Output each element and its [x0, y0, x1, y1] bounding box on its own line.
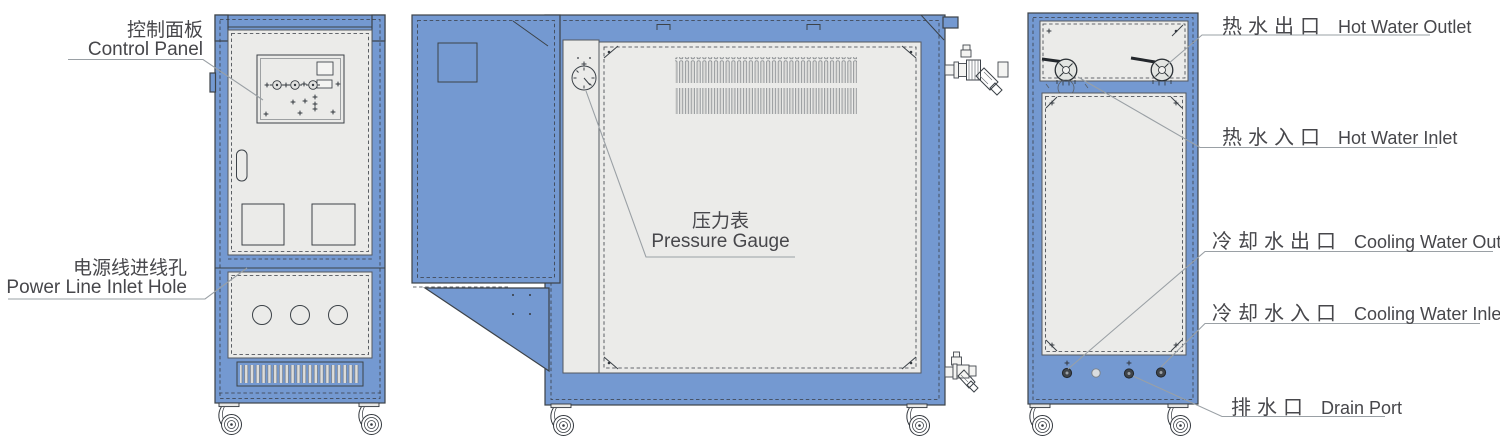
caster-icon: [551, 404, 574, 436]
label-pressure-gauge: 压力表 Pressure Gauge: [638, 212, 803, 252]
label-power-line-inlet-hole: 电源线进线孔 Power Line Inlet Hole: [5, 260, 187, 297]
panel-display: [317, 62, 333, 75]
label-zh: 控制面板: [18, 22, 203, 41]
label-en: Cooling Water Inlet: [1354, 304, 1500, 325]
water-pipe-fitting-bottom: [945, 352, 978, 392]
label-cooling-water-outlet: 冷却水出口 Cooling Water Outlet: [1212, 225, 1500, 254]
back-lower-panel: [1042, 93, 1186, 355]
caster-icon: [1168, 404, 1191, 436]
back-view: [1028, 13, 1198, 436]
label-zh: 热水出口: [1222, 10, 1326, 39]
label-en: Pressure Gauge: [638, 232, 803, 252]
caster-icon: [907, 404, 930, 436]
water-pipe-fitting-top: [945, 45, 1008, 95]
caster-icon: [359, 403, 382, 435]
side-vent-slats: [675, 57, 857, 83]
label-drain-port: 排水口 Drain Port: [1231, 391, 1402, 420]
label-zh: 冷却水入口: [1212, 297, 1342, 326]
label-en: Hot Water Inlet: [1338, 128, 1457, 149]
label-zh: 热水入口: [1222, 121, 1326, 150]
label-hot-water-outlet: 热水出口 Hot Water Outlet: [1222, 10, 1471, 39]
caster-icon: [219, 403, 242, 435]
machine-technical-drawing: 控制面板 Control Panel 电源线进线孔 Power Line Inl…: [0, 0, 1500, 439]
label-control-panel: 控制面板 Control Panel: [18, 22, 203, 59]
label-en: Cooling Water Outlet: [1354, 232, 1500, 253]
label-zh: 电源线进线孔: [5, 260, 187, 279]
side-vent-slats: [675, 88, 857, 114]
front-view: [210, 15, 385, 435]
leader-hot-water-outlet: [1168, 35, 1430, 64]
door-hinge: [210, 73, 216, 92]
label-zh: 压力表: [638, 212, 803, 232]
rear-tower: [412, 15, 560, 283]
caster-icon: [1030, 404, 1053, 436]
label-hot-water-inlet: 热水入口 Hot Water Inlet: [1222, 121, 1457, 150]
label-en: Drain Port: [1321, 398, 1402, 419]
label-en: Power Line Inlet Hole: [5, 279, 187, 298]
label-zh: 冷却水出口: [1212, 225, 1342, 254]
label-en: Hot Water Outlet: [1338, 17, 1471, 38]
label-zh: 排水口: [1231, 391, 1309, 420]
leader-cooling-water-inlet: [1161, 324, 1480, 368]
label-cooling-water-inlet: 冷却水入口 Cooling Water Inlet: [1212, 297, 1500, 326]
front-door: [228, 30, 372, 255]
label-en: Control Panel: [18, 41, 203, 60]
